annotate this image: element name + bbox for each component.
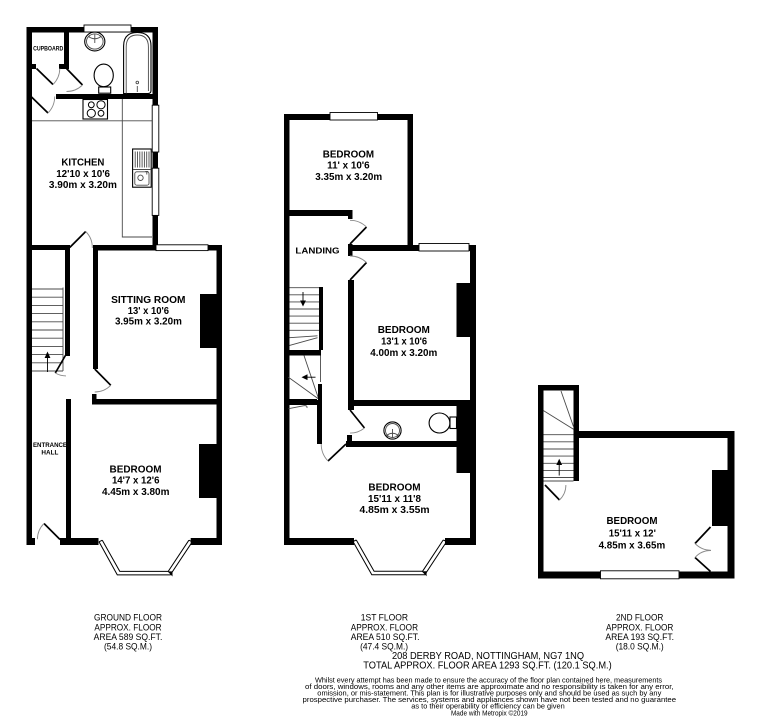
svg-text:BEDROOM: BEDROOM <box>368 482 420 494</box>
svg-text:1ST FLOOR: 1ST FLOOR <box>361 613 409 623</box>
svg-text:14'7 x 12'6: 14'7 x 12'6 <box>112 475 160 487</box>
svg-text:BEDROOM: BEDROOM <box>323 148 375 160</box>
svg-text:13'1 x 10'6: 13'1 x 10'6 <box>381 335 427 347</box>
svg-text:APPROX. FLOOR: APPROX. FLOOR <box>606 622 674 632</box>
svg-text:KITCHEN: KITCHEN <box>61 157 104 169</box>
svg-text:TOTAL APPROX. FLOOR AREA 1293: TOTAL APPROX. FLOOR AREA 1293 SQ.FT. (12… <box>363 660 611 671</box>
svg-text:4.00m x 3.20m: 4.00m x 3.20m <box>370 347 437 359</box>
svg-text:HALL: HALL <box>41 449 58 456</box>
svg-text:3.90m x 3.20m: 3.90m x 3.20m <box>49 179 117 191</box>
svg-text:AREA 589 SQ.FT.: AREA 589 SQ.FT. <box>94 632 163 642</box>
svg-text:BEDROOM: BEDROOM <box>378 324 430 336</box>
svg-text:ENTRANCE: ENTRANCE <box>33 442 67 449</box>
svg-text:2ND FLOOR: 2ND FLOOR <box>616 613 664 623</box>
svg-text:11' x 10'6: 11' x 10'6 <box>327 160 370 172</box>
svg-text:AREA 510 SQ.FT.: AREA 510 SQ.FT. <box>351 632 420 642</box>
svg-text:CUPBOARD: CUPBOARD <box>33 46 64 53</box>
svg-text:APPROX. FLOOR: APPROX. FLOOR <box>351 622 419 632</box>
svg-text:12'10 x 10'6: 12'10 x 10'6 <box>56 168 110 180</box>
svg-text:(54.8 SQ.M.): (54.8 SQ.M.) <box>104 642 152 652</box>
svg-text:4.85m x 3.65m: 4.85m x 3.65m <box>599 539 666 551</box>
svg-text:15'11 x 11'8: 15'11 x 11'8 <box>368 493 421 505</box>
svg-text:Made with Metropix ©2019: Made with Metropix ©2019 <box>451 708 528 717</box>
svg-text:APPROX. FLOOR: APPROX. FLOOR <box>94 622 162 632</box>
svg-text:GROUND FLOOR: GROUND FLOOR <box>94 613 162 623</box>
svg-text:3.95m x 3.20m: 3.95m x 3.20m <box>115 316 182 328</box>
svg-text:(18.0 SQ.M.): (18.0 SQ.M.) <box>616 642 664 652</box>
svg-text:(47.4 SQ.M.): (47.4 SQ.M.) <box>360 642 408 652</box>
svg-text:4.85m x 3.55m: 4.85m x 3.55m <box>360 504 430 516</box>
svg-text:15'11 x 12': 15'11 x 12' <box>609 527 656 539</box>
svg-text:LANDING: LANDING <box>295 245 339 255</box>
svg-text:BEDROOM: BEDROOM <box>607 515 658 527</box>
svg-text:AREA 193 SQ.FT.: AREA 193 SQ.FT. <box>605 632 674 642</box>
svg-text:4.45m x 3.80m: 4.45m x 3.80m <box>102 486 170 498</box>
svg-text:3.35m x 3.20m: 3.35m x 3.20m <box>315 171 382 183</box>
